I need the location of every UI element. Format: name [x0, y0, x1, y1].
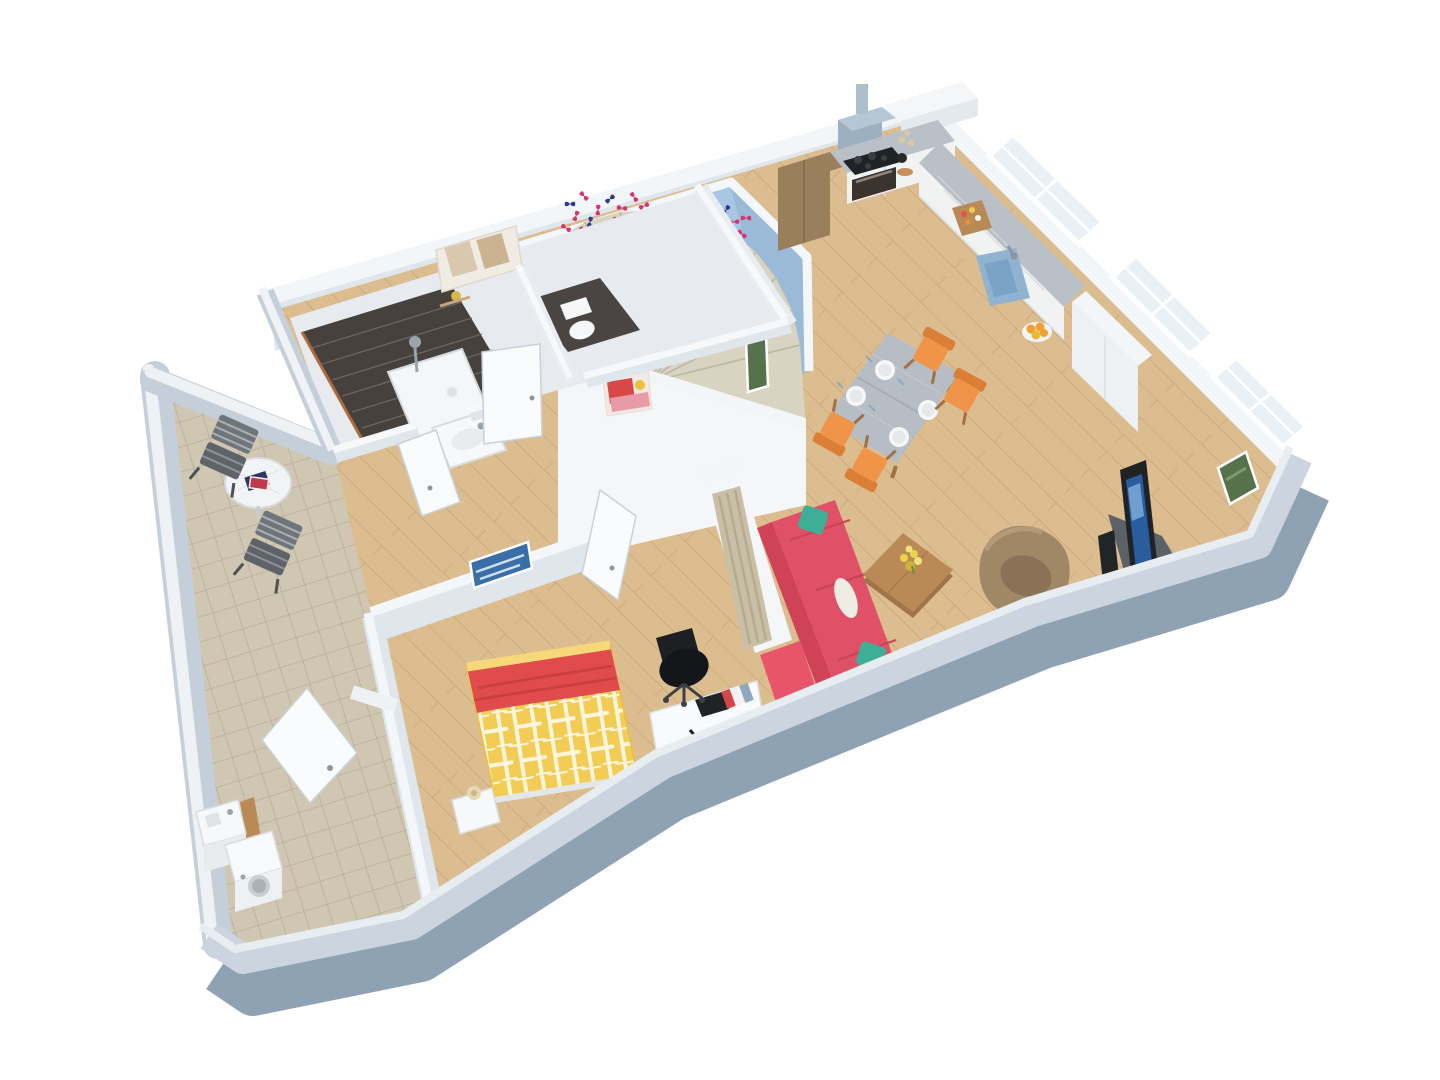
- coffee-machine: [897, 153, 907, 163]
- floorplan-render: [0, 0, 1440, 1080]
- floorplan-svg: [0, 0, 1440, 1080]
- magazine: [249, 477, 268, 490]
- fruit-bowl: [1022, 322, 1052, 342]
- food-plate: [897, 168, 913, 176]
- shower-head: [409, 336, 421, 348]
- wc-door: [482, 344, 542, 444]
